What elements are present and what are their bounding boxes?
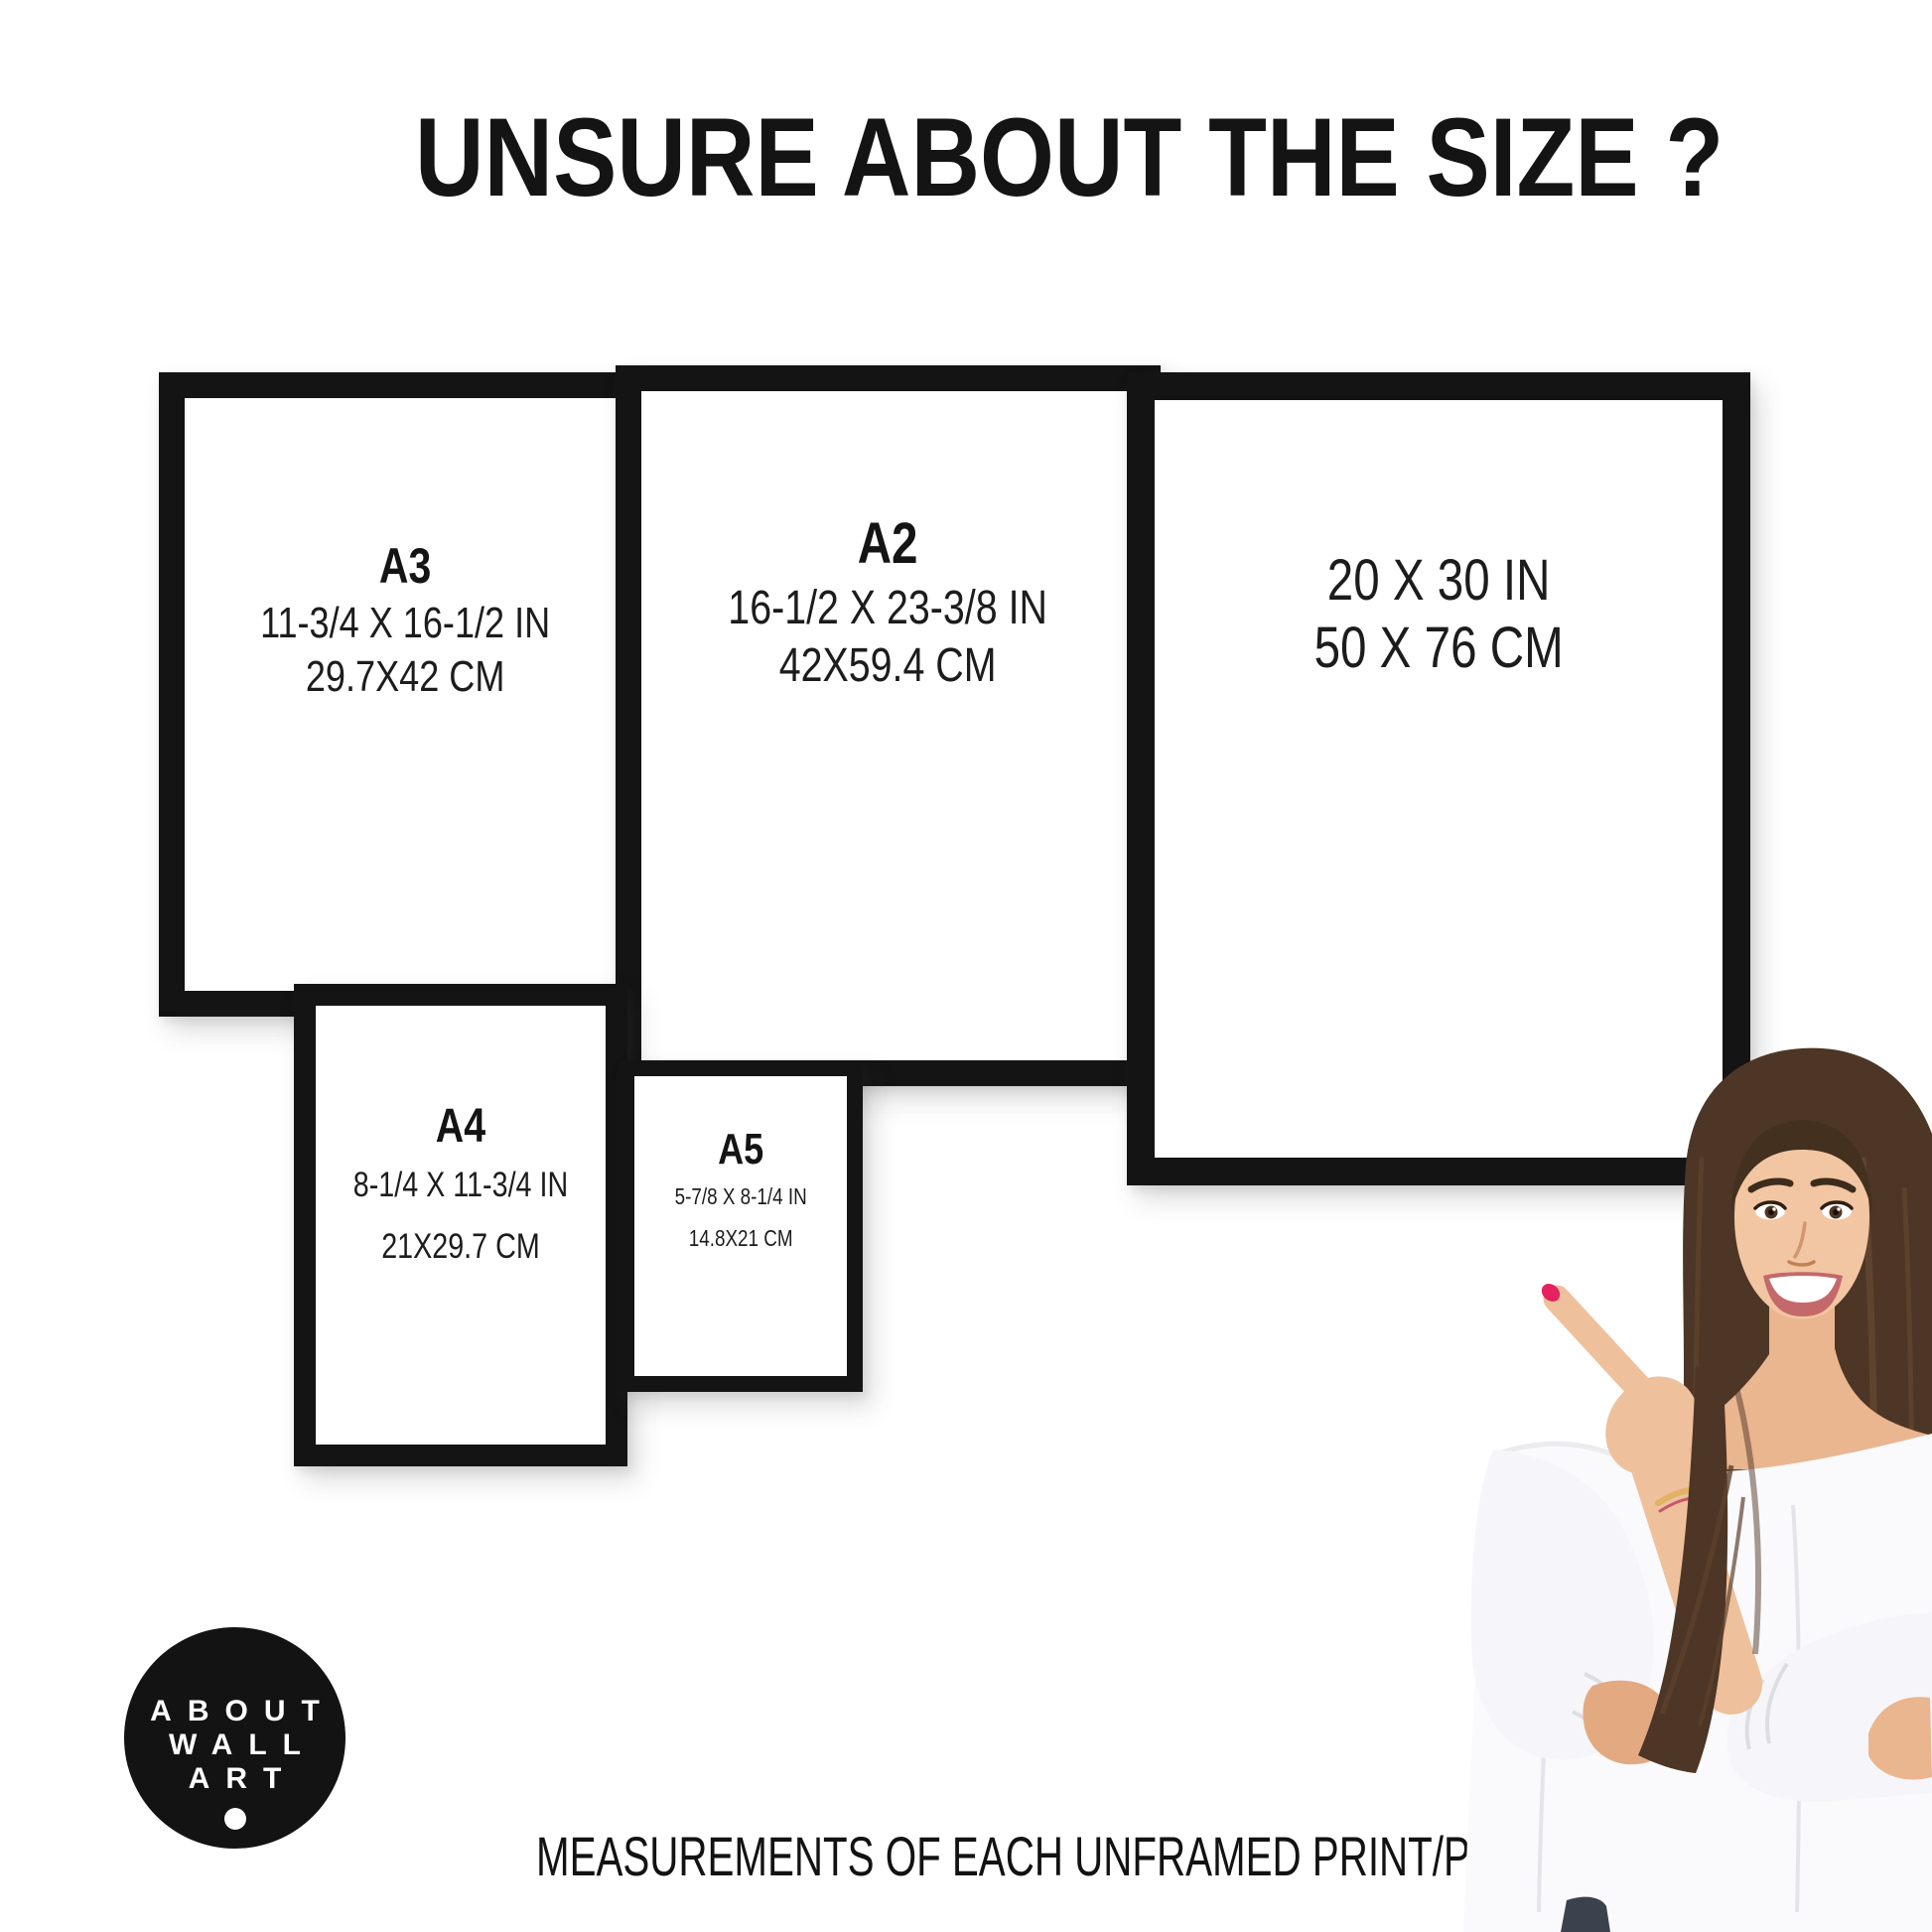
frame-a5: A5 5-7/8 X 8-1/4 IN 14.8X21 CM: [619, 1060, 863, 1392]
size-guide-infographic: UNSURE ABOUT THE SIZE ? A3 11-3/4 X 16-1…: [0, 0, 1932, 1932]
frame-a2: A2 16-1/2 X 23-3/8 IN 42X59.4 CM: [616, 365, 1161, 1086]
frame-a3-cm: 29.7X42 CM: [260, 650, 550, 704]
page-title: UNSURE ABOUT THE SIZE ?: [415, 99, 1610, 216]
frame-a5-inches: 5-7/8 X 8-1/4 IN: [674, 1177, 806, 1215]
frame-a4: A4 8-1/4 X 11-3/4 IN 21X29.7 CM: [294, 984, 627, 1466]
brand-logo-line1: ABOUT: [150, 1695, 336, 1728]
frame-a2-inches: 16-1/2 X 23-3/8 IN: [729, 580, 1048, 637]
frame-20x30-cm: 50 X 76 CM: [1313, 615, 1563, 682]
frame-20x30-inches: 20 X 30 IN: [1313, 547, 1563, 615]
brand-logo-line2: WALL: [169, 1728, 317, 1762]
frame-a3: A3 11-3/4 X 16-1/2 IN 29.7X42 CM: [159, 372, 652, 1017]
frame-a3-label: A3: [260, 535, 550, 597]
brand-logo-text: ABOUT WALL ART: [134, 1695, 336, 1796]
frame-a4-label: A4: [353, 1095, 568, 1159]
frame-a4-cm: 21X29.7 CM: [353, 1220, 568, 1274]
frame-a5-plate: A5 5-7/8 X 8-1/4 IN 14.8X21 CM: [634, 1076, 847, 1422]
frame-a3-inches: 11-3/4 X 16-1/2 IN: [260, 597, 550, 650]
frame-a2-label: A2: [729, 508, 1048, 580]
brand-logo-line3: ART: [189, 1762, 298, 1796]
footer-caption: MEASUREMENTS OF EACH UNFRAMED PRINT/POST…: [536, 1827, 1251, 1886]
frame-a2-cm: 42X59.4 CM: [729, 637, 1048, 695]
frame-a4-plate: A4 8-1/4 X 11-3/4 IN 21X29.7 CM: [316, 1006, 606, 1534]
frame-a5-label: A5: [674, 1122, 806, 1177]
woman-pointing-photo: [1436, 1038, 1932, 1932]
frame-a4-inches: 8-1/4 X 11-3/4 IN: [353, 1159, 568, 1212]
brand-logo: ABOUT WALL ART: [124, 1627, 345, 1849]
frame-a5-cm: 14.8X21 CM: [674, 1219, 806, 1257]
brand-logo-dot-icon: [224, 1808, 246, 1830]
